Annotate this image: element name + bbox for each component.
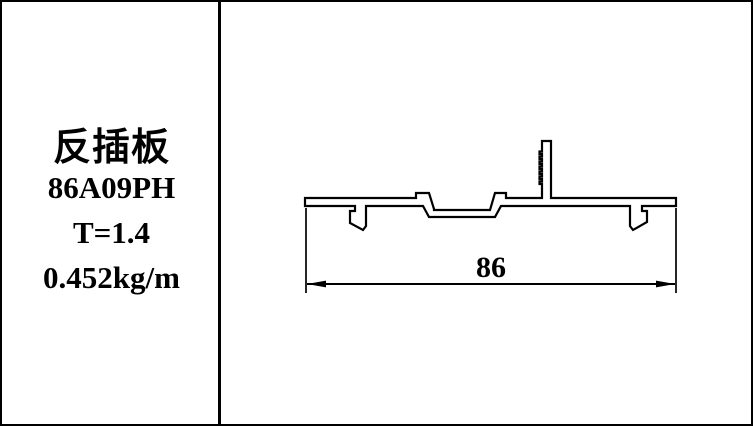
profile-drawing: 86	[2, 2, 753, 426]
dimension-arrow-left	[307, 281, 326, 288]
drawing-sheet: 反插板 86A09PH T=1.4 0.452kg/m 86	[0, 0, 753, 426]
profile-cross-section-outline	[305, 141, 676, 230]
dimension-label: 86	[476, 251, 506, 284]
dimension-arrow-right	[656, 281, 675, 288]
